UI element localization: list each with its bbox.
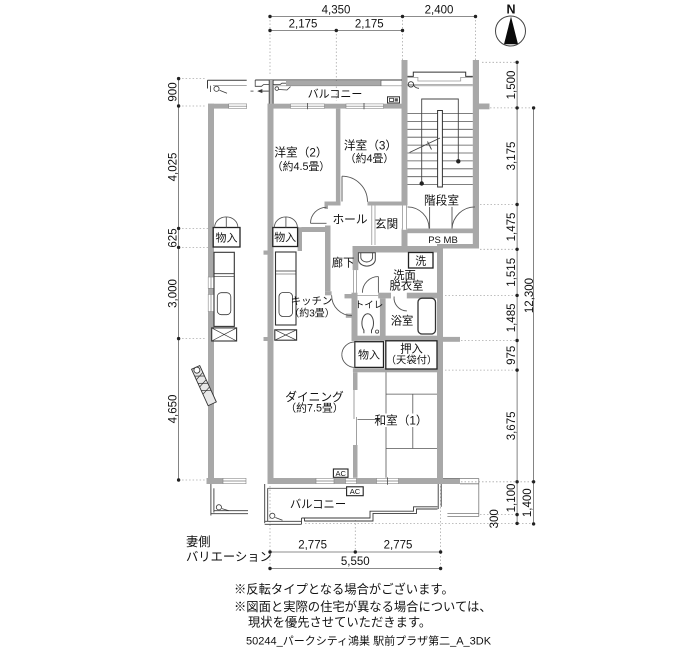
svg-text:5,550: 5,550 (341, 556, 370, 568)
svg-text:3,000: 3,000 (168, 279, 180, 308)
svg-text:2,775: 2,775 (384, 540, 413, 552)
svg-text:2,400: 2,400 (425, 5, 454, 17)
svg-text:トイレ: トイレ (355, 300, 384, 311)
svg-text:（約4.5畳）: （約4.5畳） (272, 159, 330, 173)
svg-text:3,675: 3,675 (506, 412, 518, 441)
svg-text:1,485: 1,485 (506, 304, 518, 333)
svg-text:物入: 物入 (358, 348, 380, 362)
svg-text:4,650: 4,650 (168, 395, 180, 424)
svg-text:洗: 洗 (415, 254, 426, 267)
svg-text:1,500: 1,500 (506, 71, 518, 100)
svg-text:（約7.5畳）: （約7.5畳） (285, 401, 343, 415)
svg-text:洋室（2）: 洋室（2） (274, 146, 327, 160)
svg-text:1,100: 1,100 (506, 484, 518, 513)
svg-text:300: 300 (489, 509, 501, 528)
svg-text:洋室（3）: 洋室（3） (344, 139, 397, 153)
svg-text:廊下: 廊下 (332, 256, 355, 270)
svg-text:12,300: 12,300 (524, 278, 536, 313)
svg-text:（約4畳）: （約4畳） (345, 151, 394, 165)
svg-text:1,515: 1,515 (506, 258, 518, 287)
svg-text:玄関: 玄関 (375, 217, 398, 231)
svg-text:押入: 押入 (400, 342, 423, 356)
svg-text:バルコニー: バルコニー (308, 88, 363, 101)
svg-text:4,350: 4,350 (322, 5, 351, 17)
svg-text:3,175: 3,175 (506, 142, 518, 171)
svg-text:（約3畳）: （約3畳） (289, 307, 335, 320)
svg-text:物入: 物入 (216, 231, 238, 245)
svg-text:2,175: 2,175 (289, 19, 318, 31)
svg-text:浴室: 浴室 (391, 314, 414, 328)
svg-text:和室（1）: 和室（1） (374, 414, 427, 428)
svg-text:AC: AC (335, 469, 346, 478)
svg-text:50244_パークシティ鴻巣 駅前プラザ第二_A_3DK: 50244_パークシティ鴻巣 駅前プラザ第二_A_3DK (246, 634, 492, 648)
svg-text:※反転タイプとなる場合がございます。: ※反転タイプとなる場合がございます。 (234, 582, 454, 597)
svg-text:625: 625 (168, 228, 180, 247)
svg-text:1,400: 1,400 (522, 488, 534, 517)
svg-text:AC: AC (350, 487, 361, 496)
svg-text:4,025: 4,025 (168, 153, 180, 182)
svg-text:ホール: ホール (332, 214, 367, 227)
svg-text:現状を優先させていただきます。: 現状を優先させていただきます。 (248, 616, 431, 630)
svg-text:バリエーション: バリエーション (186, 550, 272, 564)
svg-text:2,775: 2,775 (298, 540, 327, 552)
svg-text:（天袋付）: （天袋付） (386, 354, 437, 367)
svg-text:1,475: 1,475 (506, 213, 518, 242)
svg-text:975: 975 (506, 346, 518, 365)
svg-text:脱衣室: 脱衣室 (390, 279, 424, 293)
svg-text:妻側: 妻側 (186, 535, 211, 549)
svg-text:900: 900 (168, 82, 180, 101)
svg-text:※図面と実際の住宅が異なる場合については、: ※図面と実際の住宅が異なる場合については、 (234, 599, 492, 614)
svg-text:N: N (506, 3, 515, 17)
svg-text:階段室: 階段室 (424, 194, 459, 208)
svg-text:PS MB: PS MB (428, 235, 458, 246)
svg-text:バルコニー: バルコニー (290, 498, 346, 511)
svg-text:キッチン: キッチン (291, 296, 333, 308)
svg-text:物入: 物入 (274, 230, 296, 244)
svg-text:2,175: 2,175 (355, 19, 384, 31)
